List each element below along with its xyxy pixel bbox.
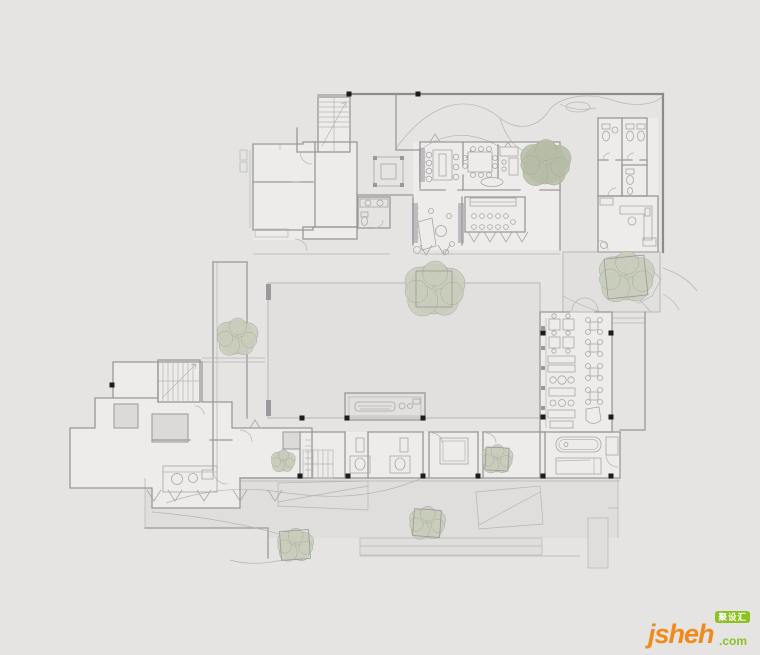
structural-column <box>298 474 303 479</box>
floor-plan <box>0 0 760 655</box>
structural-column <box>541 331 546 336</box>
structural-column <box>345 416 350 421</box>
structural-column <box>347 92 352 97</box>
tree <box>521 139 571 185</box>
structural-column <box>541 474 546 479</box>
structural-column <box>110 383 115 388</box>
floor-fills <box>70 95 660 568</box>
tree <box>271 450 295 472</box>
structural-column <box>421 416 426 421</box>
logo-badge: 聚设汇 <box>715 611 750 623</box>
logo-brand-text: jsheh <box>648 621 714 647</box>
structural-column <box>346 474 351 479</box>
tree <box>405 261 465 316</box>
tree <box>599 251 654 302</box>
structural-column <box>421 474 426 479</box>
structural-column <box>609 415 614 420</box>
tree <box>217 318 258 355</box>
structural-column <box>609 331 614 336</box>
structural-column <box>541 415 546 420</box>
watermark-logo: jsheh 聚设汇 .com <box>648 611 750 647</box>
tree <box>410 506 446 539</box>
tree <box>482 444 513 473</box>
connector-rooms <box>357 156 413 228</box>
tree <box>278 528 314 561</box>
structural-column <box>416 92 421 97</box>
structural-column <box>476 474 481 479</box>
structural-column <box>609 474 614 479</box>
structural-column <box>300 416 305 421</box>
page-canvas: { "watermark": { "brand": "jsheh", "tld"… <box>0 0 760 655</box>
logo-tld-text: .com <box>719 634 747 648</box>
